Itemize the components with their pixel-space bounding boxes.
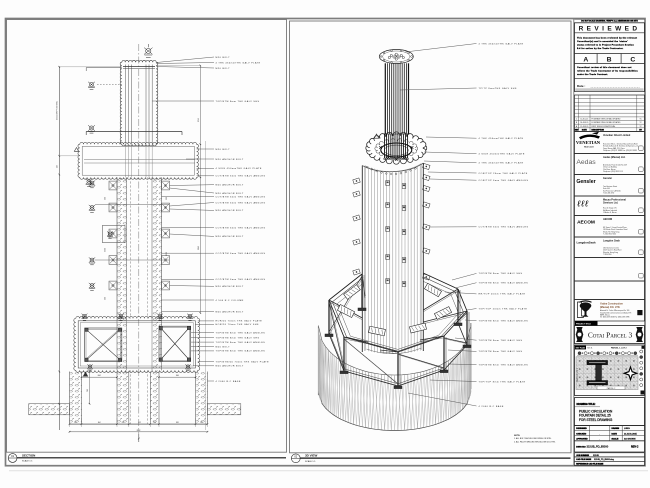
- svg-text:4 THK 450mmTHK GALV PLATE: 4 THK 450mmTHK GALV PLATE: [479, 162, 524, 165]
- svg-text:ℓℓℓ: ℓℓℓ: [577, 199, 589, 209]
- svg-text:26-JUN-15: 26-JUN-15: [580, 122, 588, 124]
- svg-text:This document has been reviewe: This document has been reviewed by the r…: [577, 36, 637, 39]
- svg-text:Aedas: Aedas: [576, 159, 596, 166]
- svg-text:4 2000 R.C BASE: 4 2000 R.C BASE: [479, 405, 504, 408]
- svg-text:3D VIEW: 3D VIEW: [305, 454, 318, 458]
- svg-text:M20 ANCHOR BOLT: M20 ANCHOR BOLT: [216, 285, 244, 288]
- svg-text:315UB_PD_85000.dwg: 315UB_PD_85000.dwg: [594, 459, 614, 461]
- svg-text:364: 364: [57, 165, 59, 168]
- svg-text:TOP/BTM/20 70mm THK GALV PLATE: TOP/BTM/20 70mm THK GALV PLATE: [216, 360, 270, 363]
- svg-text:200: 200: [74, 422, 77, 424]
- svg-text:4 2000 R.C BASE: 4 2000 R.C BASE: [216, 380, 241, 383]
- svg-text:TOP/BTM 8mm THK GALV SHS: TOP/BTM 8mm THK GALV SHS: [479, 339, 523, 342]
- svg-text:4 THK 450mmTHK GALV PLATE: 4 THK 450mmTHK GALV PLATE: [479, 42, 524, 45]
- svg-text:COR/TOP 20mm THK GALV PLATE: COR/TOP 20mm THK GALV PLATE: [479, 172, 528, 175]
- svg-text:DRAWING TITLE:: DRAWING TITLE:: [577, 403, 596, 406]
- svg-text:TOP/TOP 20mm THK GALV PLATE: TOP/TOP 20mm THK GALV PLATE: [479, 307, 528, 310]
- svg-text:14-AUG-2015: 14-AUG-2015: [624, 432, 638, 435]
- svg-text:500: 500: [105, 197, 107, 200]
- svg-text:Consultant review of this docu: Consultant review of this document does …: [577, 66, 632, 69]
- svg-text:DWG NO: DWG NO: [576, 447, 586, 449]
- svg-text:864: 864: [98, 422, 101, 424]
- svg-text:KEY PLAN: KEY PLAN: [576, 347, 586, 350]
- svg-text:864: 864: [98, 375, 101, 377]
- svg-text:200: 200: [153, 422, 156, 424]
- svg-text:T 28302500: T 28302500: [603, 254, 612, 256]
- svg-text:M20 ANCHOR BOLT: M20 ANCHOR BOLT: [216, 209, 244, 212]
- svg-text:COT/BTM 6mm THK GALV ANGLES: COT/BTM 6mm THK GALV ANGLES: [216, 278, 266, 281]
- svg-text:Gensler: Gensler: [576, 179, 595, 185]
- svg-text:FOUNTAIN STEEL DETAIL UPDATED: FOUNTAIN STEEL DETAIL UPDATED: [592, 118, 622, 121]
- svg-text:PARCEL 2: PARCEL 2: [607, 387, 616, 390]
- svg-text:TOP/BTM 8mm THK GALV SHS: TOP/BTM 8mm THK GALV SHS: [216, 100, 260, 103]
- svg-text:Telephone: (853) 81 18888 Fax: Telephone: (853) 81 18888 Fax: (853) 81 …: [603, 150, 637, 152]
- svg-text:COT/BTM 6mm THK GALV ANGLES: COT/BTM 6mm THK GALV ANGLES: [216, 201, 266, 204]
- svg-text:REFERENCE CAD FILE NAME: REFERENCE CAD FILE NAME: [576, 463, 604, 466]
- svg-text:under the Trade Contract.: under the Trade Contract.: [577, 73, 608, 76]
- svg-text:Gensler: Gensler: [603, 177, 612, 180]
- svg-text:2840: 2840: [198, 246, 200, 250]
- svg-text:TOP/BTM 8mm THK GALV ANGLES: TOP/BTM 8mm THK GALV ANGLES: [479, 363, 529, 366]
- svg-text:200: 200: [122, 422, 125, 424]
- svg-text:M A C A O: M A C A O: [584, 146, 594, 149]
- svg-text:REVIEWED: REVIEWED: [579, 26, 641, 33]
- svg-text:SCALE 1:5: SCALE 1:5: [305, 460, 316, 463]
- svg-text:500: 500: [166, 197, 168, 200]
- svg-text:HR/TOP 20mm THK GALV PLATE: HR/TOP 20mm THK GALV PLATE: [479, 293, 526, 296]
- svg-text:AECOM: AECOM: [603, 218, 612, 221]
- svg-text:TOP/BTM 8mm THK GALV ANGLES: TOP/BTM 8mm THK GALV ANGLES: [216, 341, 266, 344]
- svg-text:SCALE 1:5: SCALE 1:5: [22, 460, 33, 463]
- svg-text:AECOM: AECOM: [577, 219, 595, 225]
- svg-text:AS SHOWN: AS SHOWN: [624, 437, 636, 440]
- svg-text:COT/BTM 6mm THK GALV ANGLES: COT/BTM 6mm THK GALV ANGLES: [216, 226, 266, 229]
- svg-text:Wanchai, Hong Kong: Wanchai, Hong Kong: [603, 252, 618, 254]
- svg-text:4 THK 450mmTHK GALV PLATE: 4 THK 450mmTHK GALV PLATE: [216, 61, 261, 64]
- svg-text:Tel: (853) 2870 3036 Fax: (85: Tel: (853) 2870 3036 Fax: (853) 2870 399…: [600, 317, 630, 319]
- svg-text:REV C: REV C: [631, 446, 639, 449]
- svg-text:TP/TP 8mmTHK GALV SHS: TP/TP 8mmTHK GALV SHS: [479, 87, 517, 90]
- svg-text:500: 500: [105, 297, 107, 300]
- svg-text:DESIGNED: DESIGNED: [576, 428, 587, 430]
- svg-text:DO NOT SCALE DRAWING. VERIFY A: DO NOT SCALE DRAWING. VERIFY ALL DIMENSI…: [581, 19, 638, 22]
- svg-text:COT/BTM 6mm THK GALV ANGLES: COT/BTM 6mm THK GALV ANGLES: [479, 226, 529, 229]
- svg-text:HOR/20 70mm THK GALV SHS: HOR/20 70mm THK GALV SHS: [216, 323, 259, 326]
- svg-text:10-JUL-15: 10-JUL-15: [580, 119, 588, 121]
- svg-text:TOP/BTM 8mm THK GALV ANGLES: TOP/BTM 8mm THK GALV ANGLES: [216, 331, 266, 334]
- svg-text:M20 ANCHOR BOLT: M20 ANCHOR BOLT: [216, 235, 244, 238]
- svg-text:Aedas (Macau) Ltd.: Aedas (Macau) Ltd.: [603, 156, 626, 159]
- svg-text:452: 452: [138, 422, 141, 424]
- svg-text:T 415.433.3700: T 415.433.3700: [603, 192, 614, 194]
- svg-text:1745 (VERIFY ON SITE): 1745 (VERIFY ON SITE): [57, 101, 59, 120]
- svg-text:200: 200: [200, 422, 203, 424]
- svg-text:Rua de Xangai 175: Rua de Xangai 175: [603, 208, 617, 210]
- svg-text:A: A: [583, 56, 588, 63]
- svg-text:LUNG: LUNG: [624, 428, 630, 430]
- svg-text:NOTE:: NOTE:: [514, 435, 521, 437]
- svg-text:3200: 3200: [105, 248, 107, 252]
- svg-text:315UB_PD_85000: 315UB_PD_85000: [587, 445, 609, 449]
- svg-text:CAD FILE NAME: CAD FILE NAME: [576, 458, 592, 461]
- svg-text:790: 790: [87, 389, 89, 392]
- svg-text:FOR STEEL DRAWING: FOR STEEL DRAWING: [579, 418, 613, 422]
- svg-text:4 500 R.C COLUMN: 4 500 R.C COLUMN: [216, 300, 244, 302]
- svg-text:B: B: [607, 56, 612, 63]
- svg-text:M20 ANCHOR BOLT: M20 ANCHOR BOLT: [216, 365, 244, 368]
- svg-text:SECTION: SECTION: [22, 453, 35, 457]
- svg-text:M20 BOLT: M20 BOLT: [216, 149, 231, 151]
- svg-text:(Macau) CO. LTD.: (Macau) CO. LTD.: [600, 306, 620, 309]
- svg-text:PARCEL 1, LOT 1: PARCEL 1, LOT 1: [576, 368, 579, 382]
- svg-text:M20 BOLT: M20 BOLT: [216, 57, 231, 59]
- svg-text:C: C: [630, 56, 635, 63]
- svg-text:DATE: DATE: [612, 432, 618, 435]
- svg-text:4 SIDE 450mmTHK GALV PLATE: 4 SIDE 450mmTHK GALV PLATE: [479, 152, 525, 155]
- svg-text:LangdonSeah: LangdonSeah: [576, 241, 595, 245]
- svg-text:M20 BOLT: M20 BOLT: [216, 68, 231, 70]
- svg-text:4 THK 450mmTHK GALV PLATE: 4 THK 450mmTHK GALV PLATE: [479, 137, 524, 140]
- svg-text:Services Ltd.: Services Ltd.: [603, 202, 618, 205]
- svg-text:APPROVED: APPROVED: [576, 437, 588, 440]
- svg-text:864: 864: [176, 375, 179, 377]
- svg-text:2. ALL FILLET WELDED SHOULD BE: 2. ALL FILLET WELDED SHOULD BE 6mm THK.: [514, 440, 556, 443]
- svg-text:TOP/TOP 8mm THK GALV PLATE: TOP/TOP 8mm THK GALV PLATE: [479, 380, 526, 383]
- svg-text:3200: 3200: [166, 252, 168, 256]
- svg-text:SCALE: SCALE: [612, 437, 619, 440]
- svg-text:5.4 for action by the Trade Co: 5.4 for action by the Trade Contractor.: [577, 47, 624, 50]
- svg-text:COT/BTM 6mm THK GALV ANGLES: COT/BTM 6mm THK GALV ANGLES: [216, 175, 266, 178]
- svg-text:M20 ANCHOR BOLT: M20 ANCHOR BOLT: [216, 311, 244, 314]
- svg-text:Consultant(s) and is accord: Consultant(s) and is accorded the 'statu…: [577, 40, 628, 43]
- svg-text:Venetian Orient Limited: Venetian Orient Limited: [603, 134, 631, 137]
- svg-text:Langdon Seah: Langdon Seah: [603, 240, 620, 243]
- svg-text:1745: 1745: [198, 118, 200, 122]
- svg-text:COT/BTM 6mm THK GALV ANGLES: COT/BTM 6mm THK GALV ANGLES: [216, 252, 266, 255]
- svg-text:12-JUN-15: 12-JUN-15: [580, 126, 588, 128]
- svg-text:TOP/BTM 8mm THK GALV SHS: TOP/BTM 8mm THK GALV SHS: [216, 336, 260, 339]
- svg-text:HOR/20 70mm THK GALV PLATE: HOR/20 70mm THK GALV PLATE: [216, 320, 263, 323]
- svg-text:4 SIDE 450mmTHK GALV PLATE: 4 SIDE 450mmTHK GALV PLATE: [216, 167, 262, 170]
- svg-text:VENETIAN: VENETIAN: [576, 140, 601, 145]
- svg-text:TOP/BTM 8mm THK GALV SHS: TOP/BTM 8mm THK GALV SHS: [479, 272, 523, 275]
- svg-text:N.T.S.: N.T.S.: [588, 348, 593, 350]
- svg-text:M20 ANCHOR BOLT: M20 ANCHOR BOLT: [216, 184, 244, 187]
- svg-text:Telephone: (853) 2833 1113: Telephone: (853) 2833 1113: [603, 171, 623, 173]
- svg-text:FIRST ISSUE FOR APPROVAL: FIRST ISSUE FOR APPROVAL: [592, 125, 616, 128]
- svg-text:2862: 2862: [137, 430, 141, 432]
- svg-text:Cotai Parcel 3: Cotai Parcel 3: [588, 331, 633, 340]
- svg-text:relieve the Trade Contractor o: relieve the Trade Contractor of its resp…: [577, 69, 639, 72]
- svg-text:DRAWN: DRAWN: [612, 427, 620, 430]
- svg-text:China Law Building: China Law Building: [603, 167, 617, 169]
- svg-text:FOUNTAIN STEEL DETAIL UPDATED: FOUNTAIN STEEL DETAIL UPDATED: [592, 121, 622, 124]
- svg-text:TOP/BTM 8mm THK GALV SHS: TOP/BTM 8mm THK GALV SHS: [479, 350, 523, 353]
- svg-text:M20 BOLT: M20 BOLT: [216, 347, 231, 349]
- svg-text:1. ALL BOLT SHOULD BE FIXING O: 1. ALL BOLT SHOULD BE FIXING ON SITE.: [514, 437, 552, 440]
- svg-text:M20 ANCHOR BOLT: M20 ANCHOR BOLT: [216, 158, 244, 161]
- svg-text:M20 ANCHOR BOLT: M20 ANCHOR BOLT: [216, 192, 244, 195]
- svg-text:COR/TOP 6mm THK GALV ANGLES: COR/TOP 6mm THK GALV ANGLES: [479, 179, 529, 182]
- svg-text:849: 849: [176, 422, 179, 424]
- svg-text:CHECKED: CHECKED: [576, 433, 586, 435]
- svg-text:TOP/BTM 8mm THK GALV ANGLES: TOP/BTM 8mm THK GALV ANGLES: [479, 282, 529, 285]
- svg-text:status referred to in Projec: status referred to in Project Procedure …: [577, 43, 634, 46]
- svg-text:Date :: Date :: [577, 84, 585, 88]
- svg-text:TOP/BTM 8mm THK GALV ANGLES: TOP/BTM 8mm THK GALV ANGLES: [216, 350, 266, 353]
- svg-text:COT/BTM 6mm THK GALV ANGLES: COT/BTM 6mm THK GALV ANGLES: [216, 196, 266, 199]
- svg-text:TOP/BTM 8mm THK GALV ANGLES: TOP/BTM 8mm THK GALV ANGLES: [479, 320, 529, 323]
- svg-text:T +852 3922 9000: T +852 3922 9000: [603, 233, 616, 235]
- svg-text:PARCEL 1, LOT 2: PARCEL 1, LOT 2: [611, 347, 627, 350]
